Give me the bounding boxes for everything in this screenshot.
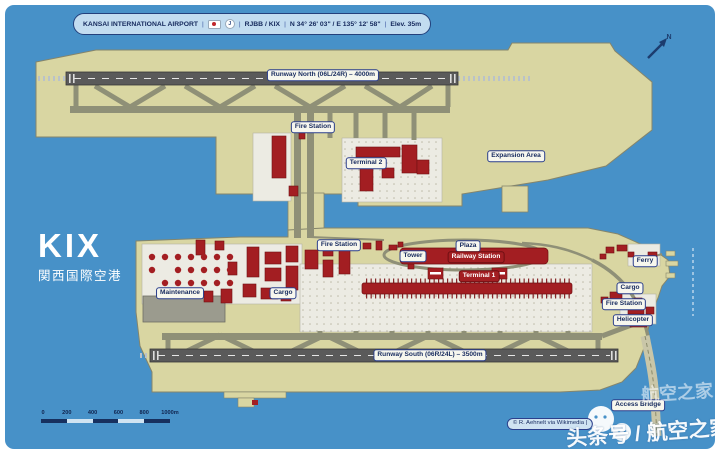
label-railway-station: Railway Station	[448, 251, 505, 263]
airport-code: KIX	[38, 229, 122, 262]
north-label: N	[663, 32, 674, 42]
scale-tick: 0	[41, 410, 44, 416]
airport-map: KANSAI INTERNATIONAL AIRPORT | J | RJBB …	[5, 5, 715, 449]
credit-line: © R. Aehnelt via Wikimedia |	[507, 418, 593, 430]
label-plaza: Plaza	[456, 240, 481, 252]
airport-title: KIX 関西国際空港	[38, 229, 122, 284]
label-runway-south: Runway South (06R/24L) – 3500m	[373, 349, 486, 361]
label-tower: Tower	[400, 250, 427, 262]
label-helicopter: Helicopter	[613, 314, 653, 326]
label-terminal1: Terminal 1	[459, 270, 500, 282]
airport-codes: RJBB / KIX	[245, 21, 281, 28]
scale-bar-segments	[41, 419, 170, 423]
label-fire-station-main: Fire Station	[317, 239, 361, 251]
label-access-bridge: Access Bridge	[611, 399, 665, 411]
scale-tick: 400	[88, 410, 97, 416]
label-maintenance: Maintenance	[156, 287, 204, 299]
scale-tick: 1000m	[161, 410, 178, 416]
airport-coordinates: N 34° 26' 03" / E 135° 12' 58"	[290, 21, 381, 28]
map-title-bar: KANSAI INTERNATIONAL AIRPORT | J | RJBB …	[73, 13, 431, 35]
label-fire-station-north: Fire Station	[291, 121, 335, 133]
screenshot-frame: KANSAI INTERNATIONAL AIRPORT | J | RJBB …	[0, 0, 720, 454]
label-cargo-west: Cargo	[269, 287, 296, 299]
label-cargo-east: Cargo	[616, 282, 643, 294]
label-ferry: Ferry	[633, 255, 658, 267]
label-terminal2: Terminal 2	[346, 157, 387, 169]
japan-flag-icon	[208, 20, 221, 29]
airport-name: KANSAI INTERNATIONAL AIRPORT	[83, 21, 198, 28]
access-bridge-road	[645, 336, 657, 436]
airport-name-japanese: 関西国際空港	[38, 265, 122, 284]
scale-tick: 600	[114, 410, 123, 416]
scale-tick: 800	[140, 410, 149, 416]
japan-roundel-icon: J	[225, 19, 235, 29]
airport-elevation: Elev. 35m	[390, 21, 421, 28]
scale-bar: 0 200 400 600 800 1000m	[41, 410, 173, 428]
label-runway-north: Runway North (06L/24R) – 4000m	[267, 69, 379, 81]
scale-tick: 200	[62, 410, 71, 416]
chat-bubbles-icon	[588, 406, 631, 441]
label-fire-station-east: Fire Station	[602, 298, 646, 310]
label-expansion-area: Expansion Area	[487, 150, 545, 162]
